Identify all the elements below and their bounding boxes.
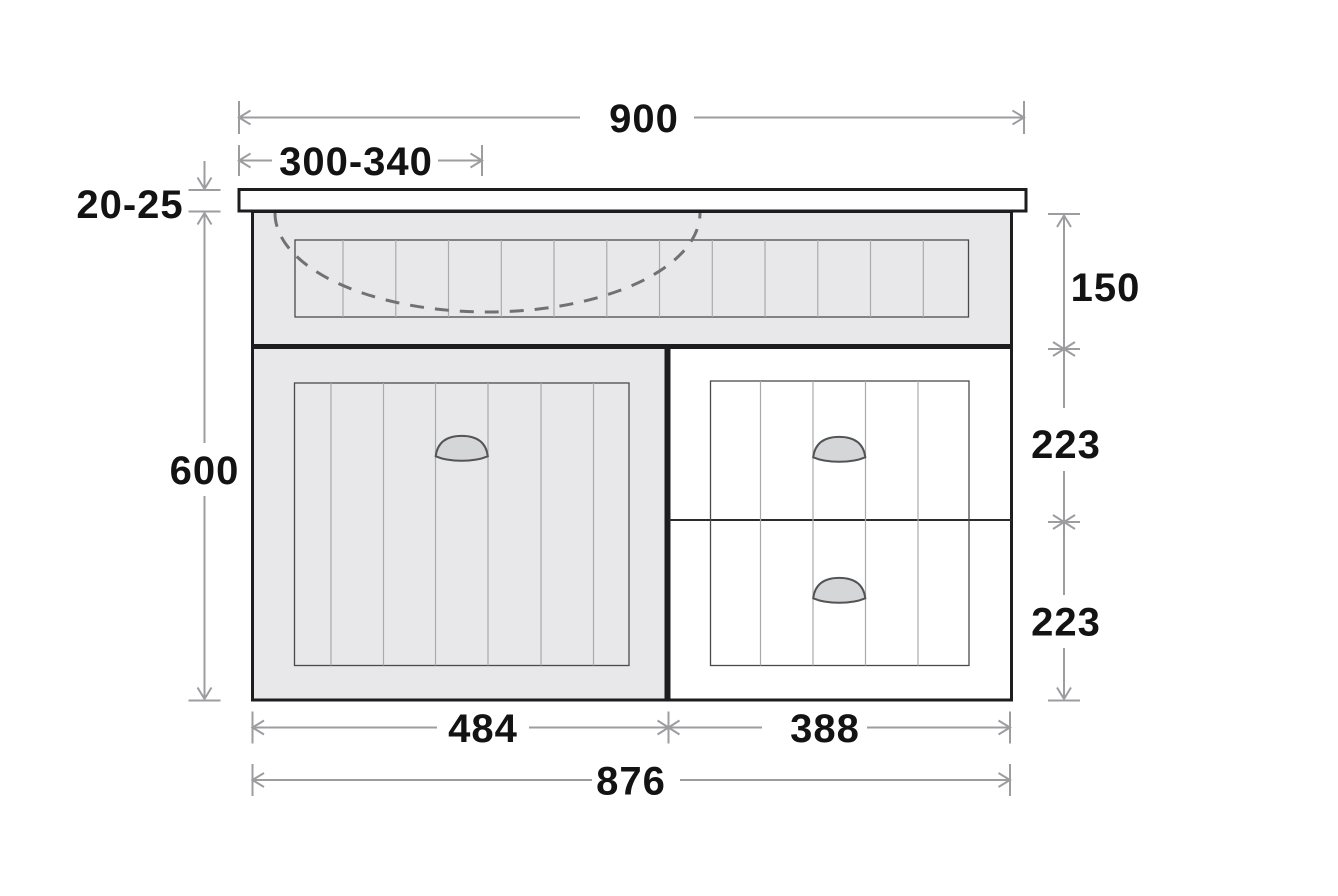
svg-text:388: 388: [790, 707, 860, 751]
svg-text:300-340: 300-340: [279, 140, 433, 184]
svg-text:484: 484: [448, 707, 518, 751]
svg-text:876: 876: [596, 760, 666, 804]
svg-text:900: 900: [609, 97, 679, 141]
svg-text:223: 223: [1031, 601, 1101, 645]
svg-text:600: 600: [170, 449, 240, 493]
svg-text:223: 223: [1031, 423, 1101, 467]
svg-text:150: 150: [1071, 266, 1141, 310]
svg-text:20-25: 20-25: [76, 183, 183, 227]
